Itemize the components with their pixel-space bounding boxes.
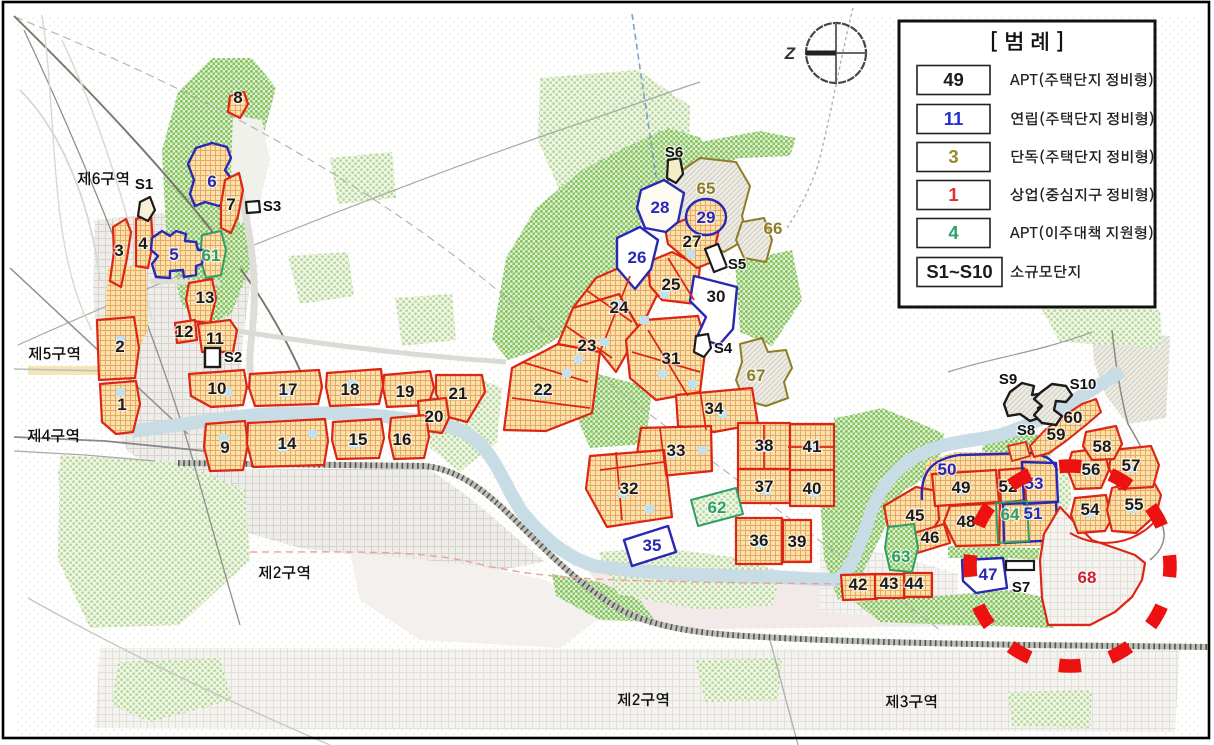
svg-text:28: 28 [651, 198, 670, 217]
svg-text:14: 14 [278, 434, 297, 453]
svg-text:17: 17 [279, 380, 298, 399]
svg-text:26: 26 [628, 248, 647, 267]
svg-text:44: 44 [905, 574, 924, 593]
svg-text:3: 3 [114, 241, 123, 260]
svg-text:67: 67 [747, 366, 766, 385]
svg-text:60: 60 [1064, 408, 1083, 427]
svg-text:7: 7 [226, 195, 235, 214]
svg-text:12: 12 [175, 322, 194, 341]
svg-text:68: 68 [1078, 568, 1097, 587]
svg-text:3: 3 [948, 146, 958, 167]
svg-text:S7: S7 [1012, 579, 1030, 596]
svg-text:50: 50 [938, 460, 957, 479]
svg-text:8: 8 [233, 88, 242, 107]
svg-text:41: 41 [803, 437, 822, 456]
svg-text:58: 58 [1093, 437, 1112, 456]
svg-text:54: 54 [1081, 500, 1100, 519]
svg-text:22: 22 [534, 380, 553, 399]
svg-text:S10: S10 [1070, 376, 1097, 393]
svg-text:23: 23 [578, 336, 597, 355]
svg-text:34: 34 [705, 399, 724, 418]
svg-text:59: 59 [1047, 425, 1066, 444]
svg-text:33: 33 [667, 441, 686, 460]
svg-text:47: 47 [979, 565, 998, 584]
svg-text:49: 49 [943, 69, 964, 90]
svg-text:13: 13 [196, 288, 215, 307]
svg-text:66: 66 [764, 219, 783, 238]
svg-text:38: 38 [755, 436, 774, 455]
svg-text:37: 37 [755, 477, 774, 496]
svg-text:1: 1 [948, 184, 958, 205]
svg-text:18: 18 [341, 380, 360, 399]
svg-text:45: 45 [906, 506, 925, 525]
svg-text:1: 1 [117, 395, 126, 414]
svg-text:11: 11 [206, 329, 224, 348]
svg-text:S1: S1 [135, 176, 153, 193]
svg-text:19: 19 [396, 382, 415, 401]
svg-text:27: 27 [683, 232, 702, 251]
svg-text:S3: S3 [263, 198, 281, 215]
svg-text:61: 61 [202, 246, 221, 265]
svg-text:49: 49 [952, 478, 971, 497]
svg-text:S5: S5 [728, 256, 746, 273]
svg-text:Z: Z [784, 44, 796, 63]
svg-text:35: 35 [643, 536, 662, 555]
svg-text:29: 29 [697, 208, 716, 227]
svg-text:31: 31 [662, 349, 681, 368]
svg-text:46: 46 [921, 528, 940, 547]
svg-text:30: 30 [707, 287, 726, 306]
svg-text:S6: S6 [665, 144, 683, 161]
svg-text:S8: S8 [1017, 422, 1035, 439]
svg-text:39: 39 [788, 532, 807, 551]
svg-text:2: 2 [115, 337, 124, 356]
svg-text:4: 4 [138, 234, 148, 253]
svg-text:51: 51 [1024, 504, 1043, 523]
svg-text:36: 36 [750, 531, 769, 550]
svg-text:42: 42 [849, 575, 868, 594]
svg-text:56: 56 [1082, 460, 1101, 479]
svg-text:9: 9 [220, 438, 229, 457]
svg-text:62: 62 [708, 498, 727, 517]
svg-text:24: 24 [610, 298, 629, 317]
svg-text:32: 32 [620, 479, 639, 498]
svg-text:15: 15 [349, 430, 368, 449]
svg-text:21: 21 [449, 384, 468, 403]
svg-text:57: 57 [1122, 456, 1141, 475]
svg-text:20: 20 [425, 407, 444, 426]
svg-text:S1~S10: S1~S10 [926, 261, 992, 282]
svg-text:43: 43 [880, 574, 899, 593]
svg-text:S9: S9 [999, 371, 1017, 388]
svg-text:5: 5 [169, 245, 178, 264]
svg-text:S4: S4 [714, 340, 733, 357]
svg-text:4: 4 [948, 222, 959, 243]
svg-text:S2: S2 [224, 349, 242, 366]
svg-text:40: 40 [803, 479, 822, 498]
svg-text:48: 48 [957, 512, 976, 531]
svg-text:10: 10 [208, 379, 227, 398]
svg-text:11: 11 [944, 108, 964, 129]
svg-text:63: 63 [892, 547, 911, 566]
svg-text:25: 25 [662, 275, 681, 294]
svg-text:65: 65 [697, 179, 716, 198]
svg-text:55: 55 [1125, 495, 1144, 514]
svg-text:16: 16 [393, 430, 412, 449]
svg-text:64: 64 [1001, 505, 1020, 524]
svg-text:6: 6 [207, 172, 216, 191]
